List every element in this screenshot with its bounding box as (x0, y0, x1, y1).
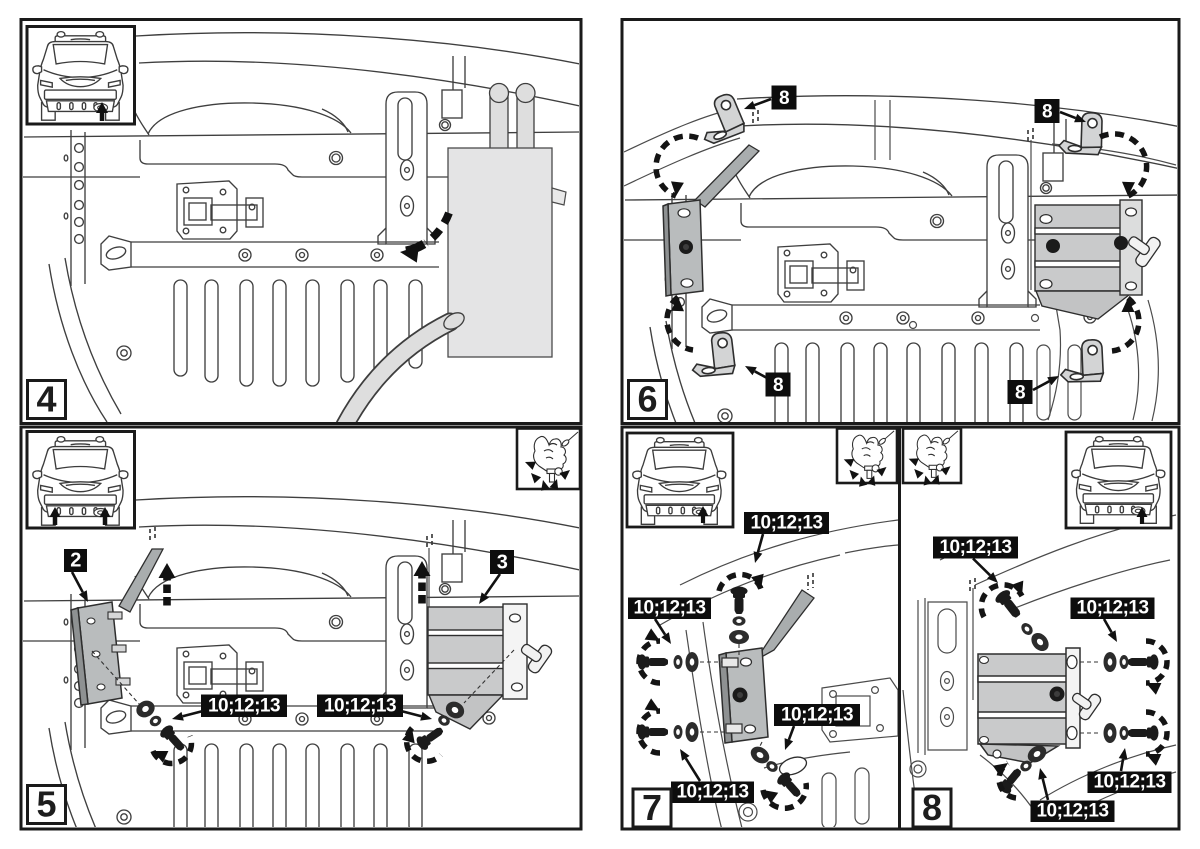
svg-text:10;12;13: 10;12;13 (208, 696, 280, 717)
svg-text:3: 3 (497, 552, 508, 574)
svg-text:8: 8 (779, 88, 789, 109)
svg-text:10;12;13: 10;12;13 (1036, 801, 1108, 822)
svg-text:10;12;13: 10;12;13 (324, 696, 396, 717)
svg-text:8: 8 (1042, 102, 1052, 123)
svg-text:8: 8 (922, 787, 942, 828)
svg-text:10;12;13: 10;12;13 (633, 598, 705, 619)
svg-text:8: 8 (773, 375, 783, 396)
svg-text:5: 5 (36, 784, 56, 825)
svg-text:10;12;13: 10;12;13 (1093, 772, 1165, 793)
svg-text:10;12;13: 10;12;13 (676, 782, 748, 803)
svg-text:10;12;13: 10;12;13 (781, 705, 853, 726)
svg-text:8: 8 (1015, 383, 1025, 404)
svg-text:7: 7 (642, 787, 662, 828)
svg-text:10;12;13: 10;12;13 (1076, 598, 1148, 619)
svg-text:4: 4 (36, 379, 56, 420)
svg-text:10;12;13: 10;12;13 (939, 537, 1011, 558)
svg-text:2: 2 (70, 550, 81, 572)
svg-text:6: 6 (637, 379, 657, 420)
svg-text:10;12;13: 10;12;13 (750, 513, 822, 534)
